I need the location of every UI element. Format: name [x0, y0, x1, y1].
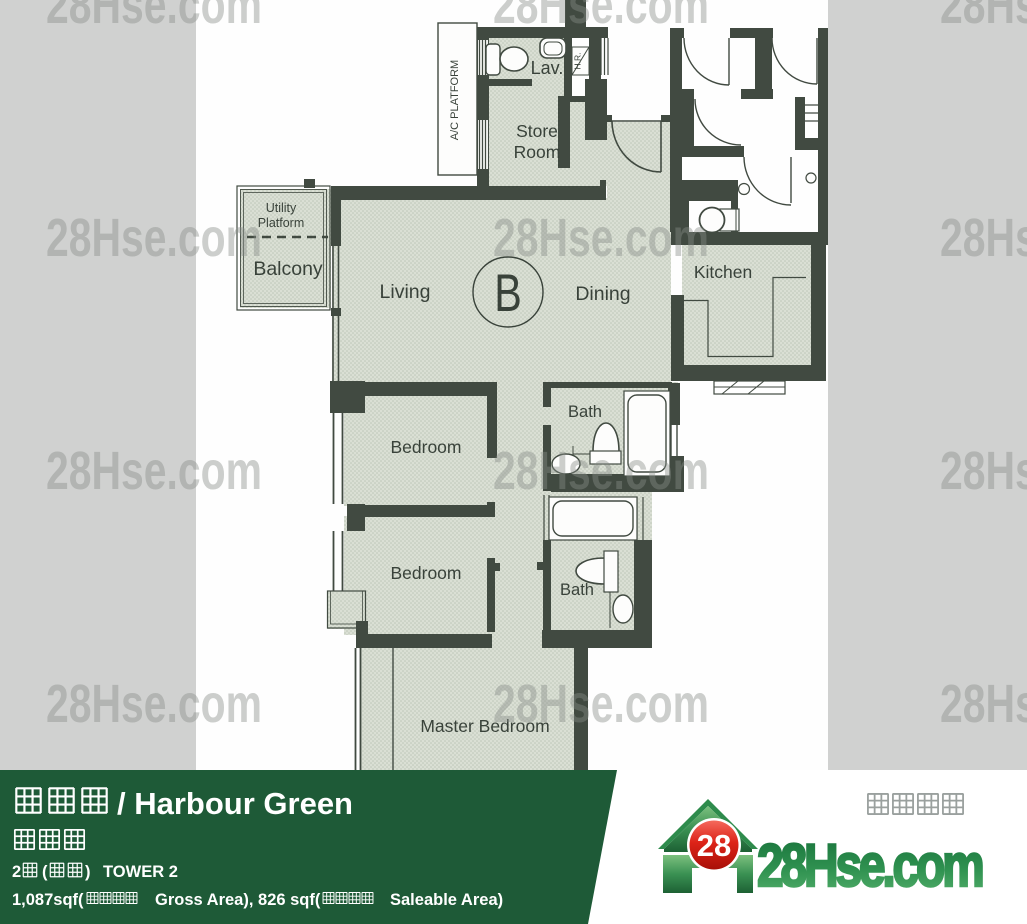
svg-text:28Hse.com: 28Hse.com: [46, 0, 262, 35]
svg-text:B: B: [494, 264, 522, 323]
svg-text:Gross Area), 826 sqf(: Gross Area), 826 sqf(: [155, 891, 321, 909]
svg-text:Bath: Bath: [568, 403, 602, 421]
svg-text:H.R.: H.R.: [573, 53, 583, 70]
svg-text:28Hse.com: 28Hse.com: [493, 208, 709, 268]
svg-text:28Hse.com: 28Hse.com: [493, 0, 709, 35]
svg-text:TOWER 2: TOWER 2: [103, 863, 178, 881]
svg-text:28Hse.com: 28Hse.com: [940, 208, 1027, 268]
svg-text:Living: Living: [380, 281, 431, 303]
svg-text:Bedroom: Bedroom: [390, 437, 461, 457]
svg-text:Utility: Utility: [266, 201, 297, 215]
svg-text:2: 2: [12, 863, 21, 881]
svg-text:Store: Store: [516, 121, 558, 141]
svg-text:28Hse.com: 28Hse.com: [46, 208, 262, 268]
svg-text:(: (: [42, 863, 48, 881]
svg-text:28Hse.com: 28Hse.com: [940, 674, 1027, 734]
svg-text:Lav.: Lav.: [531, 58, 564, 78]
svg-text:28Hse.com: 28Hse.com: [940, 0, 1027, 35]
svg-text:28Hse.com: 28Hse.com: [940, 441, 1027, 501]
svg-text:Balcony: Balcony: [253, 258, 323, 280]
svg-text:): ): [85, 863, 91, 881]
svg-text:28Hse.com: 28Hse.com: [493, 441, 709, 501]
svg-text:Bath: Bath: [560, 581, 594, 599]
svg-text:Bedroom: Bedroom: [390, 563, 461, 583]
svg-text:1,087sqf(: 1,087sqf(: [12, 891, 84, 909]
svg-text:Dining: Dining: [575, 283, 630, 305]
svg-text:Saleable Area): Saleable Area): [390, 891, 503, 909]
svg-text:Platform: Platform: [258, 216, 305, 230]
svg-text:28Hse.com: 28Hse.com: [46, 674, 262, 734]
svg-text:28Hse.com: 28Hse.com: [46, 441, 262, 501]
svg-text:/ Harbour Green: / Harbour Green: [117, 786, 353, 821]
svg-text:A/C PLATFORM: A/C PLATFORM: [449, 60, 461, 140]
svg-text:28Hse.com: 28Hse.com: [757, 832, 982, 899]
svg-text:28Hse.com: 28Hse.com: [493, 674, 709, 734]
svg-text:Room: Room: [514, 142, 561, 162]
svg-text:28: 28: [697, 828, 731, 863]
